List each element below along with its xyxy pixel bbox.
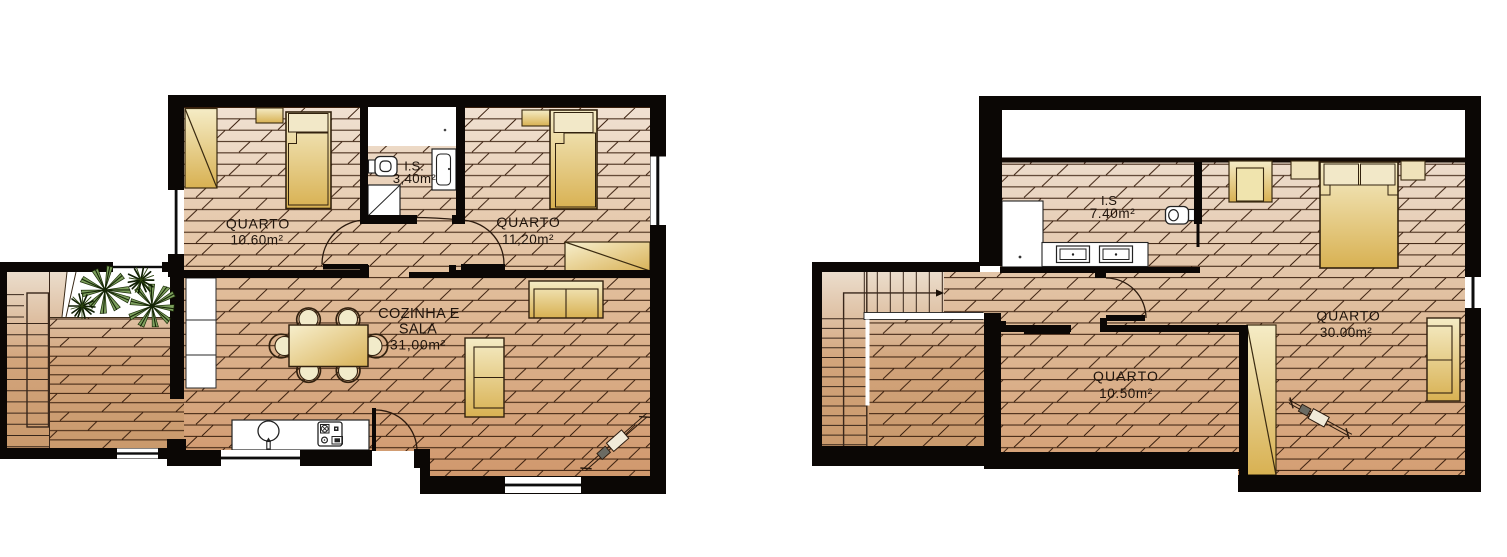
svg-text:COZINHA E: COZINHA E: [378, 306, 460, 322]
svg-text:10.50m²: 10.50m²: [1099, 386, 1153, 401]
svg-text:3,40m²: 3,40m²: [393, 171, 437, 186]
svg-text:7.40m²: 7.40m²: [1090, 206, 1136, 221]
svg-text:10.60m²: 10.60m²: [230, 233, 283, 248]
svg-text:QUARTO: QUARTO: [226, 216, 290, 232]
svg-text:QUARTO: QUARTO: [1093, 368, 1159, 384]
svg-text:QUARTO: QUARTO: [1316, 308, 1380, 324]
svg-text:SALA: SALA: [399, 322, 437, 338]
svg-text:31,00m²: 31,00m²: [390, 337, 446, 353]
svg-text:30.00m²: 30.00m²: [1320, 325, 1372, 340]
svg-text:QUARTO: QUARTO: [496, 214, 560, 230]
svg-text:11,20m²: 11,20m²: [502, 232, 554, 247]
